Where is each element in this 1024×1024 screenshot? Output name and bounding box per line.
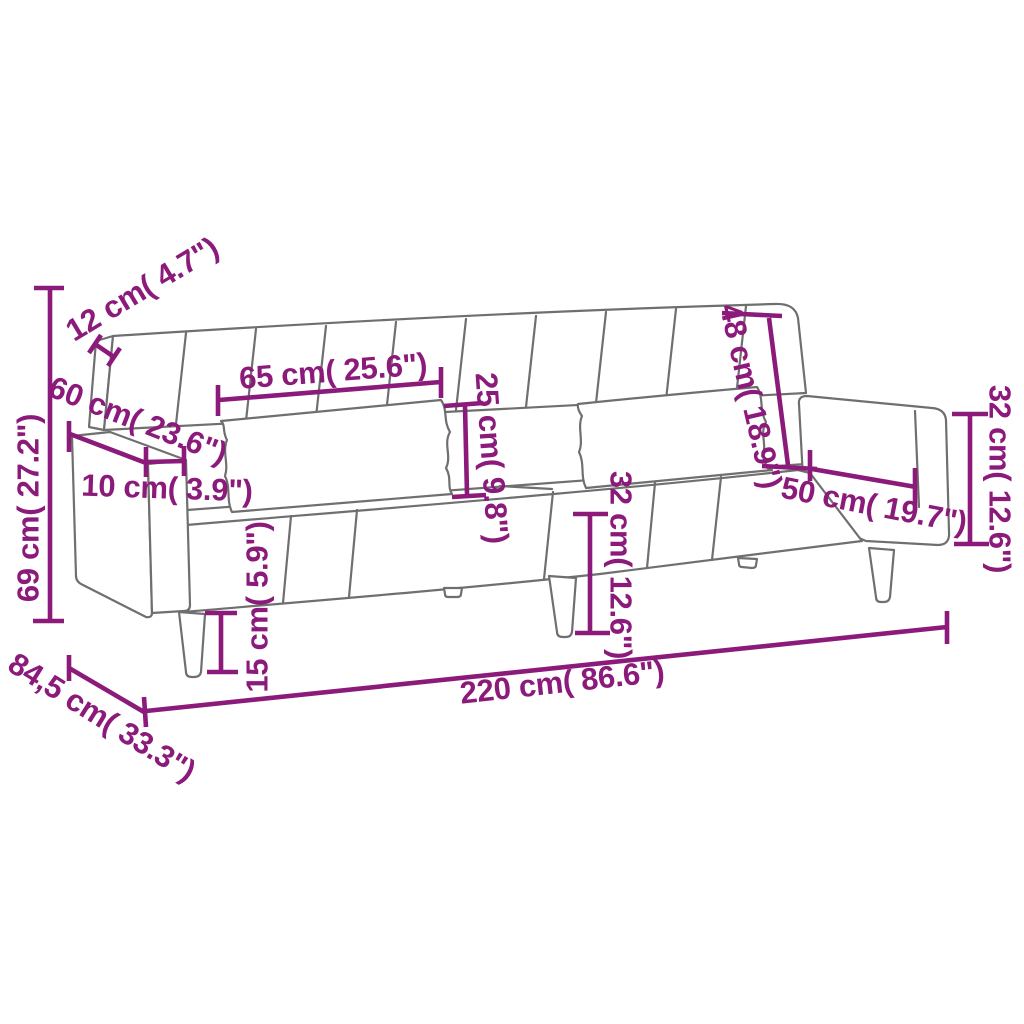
dimension-10cm-label: 10 cm( 3.9")	[81, 468, 253, 509]
leg-front-middle	[549, 576, 576, 637]
leg-front-left	[179, 612, 205, 677]
dimension-69cm: 69 cm( 27.2")	[11, 288, 65, 621]
dimension-84-5cm-label: 84,5 cm( 33.3")	[2, 646, 202, 789]
dimension-32cm-right: 32 cm( 12.6")	[952, 385, 1018, 573]
dimension-32cm-right-label: 32 cm( 12.6")	[983, 385, 1018, 573]
dimension-84-5cm: 84,5 cm( 33.3")	[2, 646, 202, 789]
leg-front-right	[869, 548, 894, 602]
pillow-left	[221, 400, 452, 512]
dimension-15cm-label: 15 cm( 5.9")	[240, 521, 275, 692]
dimension-220cm-label: 220 cm( 86.6")	[458, 653, 666, 710]
sofa-dimension-diagram: 69 cm( 27.2") 12 cm( 4.7") 60 cm( 23.6")…	[0, 0, 1024, 1024]
dimension-32cm-seat-label: 32 cm( 12.6")	[604, 471, 639, 659]
armrest-left-outer	[72, 436, 152, 617]
support-foot-right	[738, 558, 757, 568]
dimension-69cm-label: 69 cm( 27.2")	[11, 414, 46, 602]
support-foot-left	[444, 588, 462, 597]
dimension-15cm-line	[205, 613, 238, 672]
diagram-canvas: 69 cm( 27.2") 12 cm( 4.7") 60 cm( 23.6")…	[0, 0, 1024, 1024]
